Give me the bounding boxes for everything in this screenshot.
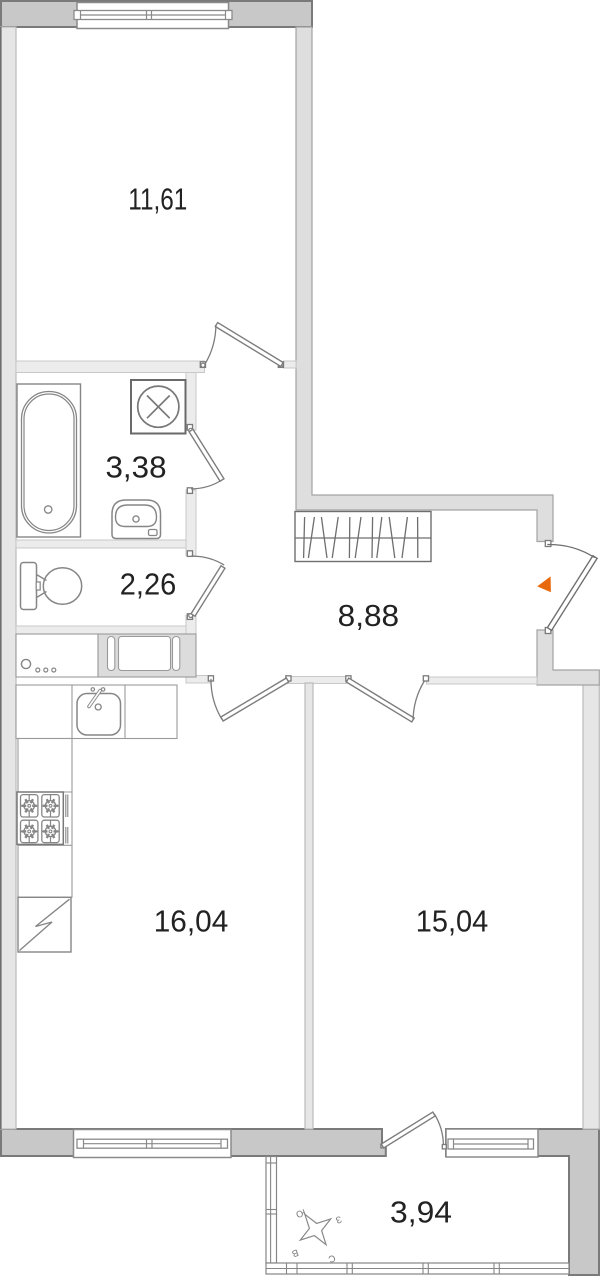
svg-text:3,94: 3,94 bbox=[390, 1195, 452, 1230]
svg-text:16,04: 16,04 bbox=[154, 903, 229, 938]
svg-text:8,88: 8,88 bbox=[338, 598, 400, 633]
svg-text:2,26: 2,26 bbox=[120, 567, 177, 602]
svg-text:15,04: 15,04 bbox=[416, 903, 489, 938]
svg-text:11,61: 11,61 bbox=[128, 182, 187, 217]
svg-text:3,38: 3,38 bbox=[106, 450, 167, 485]
